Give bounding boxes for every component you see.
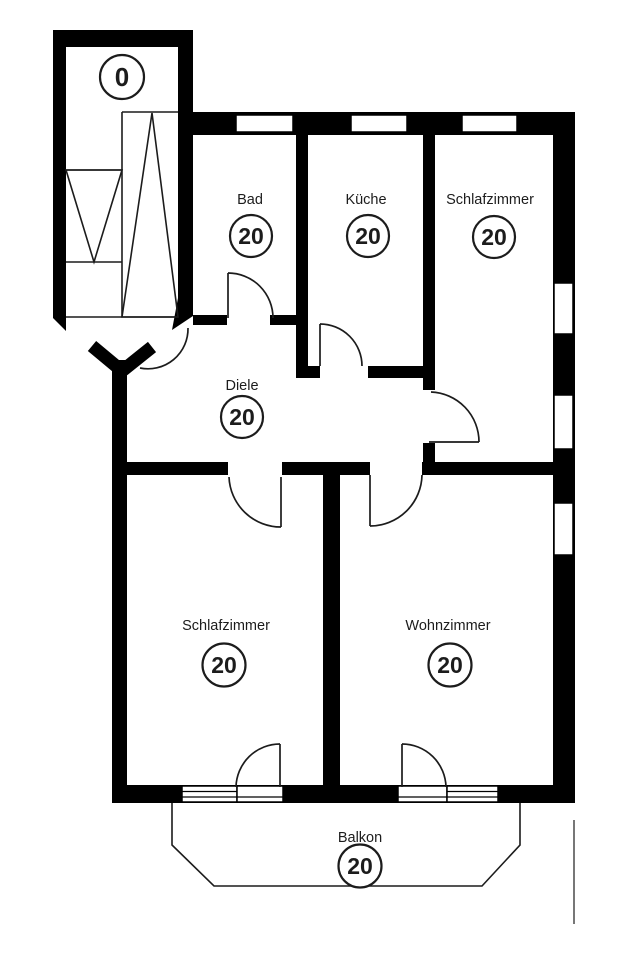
badge-num-wohnzimmer: 20 xyxy=(437,652,463,678)
badge-num-treppenhaus: 0 xyxy=(115,62,129,92)
kueche-door-arc xyxy=(320,324,362,366)
bottom-rooms-divider-wall xyxy=(323,462,340,803)
window-right-2 xyxy=(554,395,573,449)
schlafzimmer1-door-arc xyxy=(431,392,479,442)
window-right-1 xyxy=(554,283,573,334)
label-wohnzimmer: Wohnzimmer xyxy=(405,618,490,634)
label-schlafzimmer-1: Schlafzimmer xyxy=(446,192,534,208)
kueche-bottom-wall-left xyxy=(296,366,320,378)
label-schlafzimmer-2: Schlafzimmer xyxy=(182,618,270,634)
balcony-door-threshold-right xyxy=(398,786,447,802)
window-kueche xyxy=(351,115,407,132)
window-balcony-left xyxy=(182,786,237,802)
stair-arrow-down xyxy=(66,170,122,262)
wohnzimmer-door-arc xyxy=(370,475,422,526)
diele-bottom-wall-right xyxy=(422,462,553,475)
window-bad xyxy=(236,115,293,132)
stair-arrow-up xyxy=(122,113,178,317)
stairwell-left-wall xyxy=(53,30,66,312)
kueche-bottom-wall-right xyxy=(368,366,423,378)
kueche-schlafzimmer-wall xyxy=(423,135,435,390)
window-balcony-right xyxy=(447,786,498,802)
window-right-3 xyxy=(554,503,573,555)
label-bad: Bad xyxy=(237,192,263,208)
badge-num-bad: 20 xyxy=(238,223,264,249)
label-kueche: Küche xyxy=(345,192,386,208)
balcony-door-threshold-left xyxy=(237,786,283,802)
stairs-icon xyxy=(66,112,178,317)
badge-num-kueche: 20 xyxy=(355,223,381,249)
balcony-door-right-arc xyxy=(402,744,446,787)
label-diele: Diele xyxy=(225,378,258,394)
balcony-door-left-arc xyxy=(236,744,280,787)
stairwell-top-wall xyxy=(53,30,193,47)
schlafzimmer2-door-arc xyxy=(229,477,281,527)
left-wall xyxy=(112,360,127,790)
entrance-wall-chevron xyxy=(92,346,152,371)
stairwell-left-wall-tip xyxy=(53,308,66,331)
bad-kueche-wall xyxy=(296,135,308,378)
diele-bottom-wall-left xyxy=(112,462,228,475)
bad-door-arc xyxy=(228,273,273,318)
window-schlafzimmer1-top xyxy=(462,115,517,132)
badge-num-schlafzimmer-2: 20 xyxy=(211,652,237,678)
right-wall xyxy=(553,112,575,803)
stairwell-right-wall xyxy=(178,30,193,302)
badge-num-diele: 20 xyxy=(229,404,255,430)
stairwell-right-wall-tip xyxy=(172,298,193,330)
bad-bottom-wall-left xyxy=(193,315,227,325)
badge-num-schlafzimmer-1: 20 xyxy=(481,224,507,250)
floor-plan-canvas: 0 Bad 20 Küche 20 Schlafzimmer 20 Diele … xyxy=(0,0,619,960)
floor-plan: 0 Bad 20 Küche 20 Schlafzimmer 20 Diele … xyxy=(0,0,619,960)
badge-num-balkon: 20 xyxy=(347,853,373,879)
